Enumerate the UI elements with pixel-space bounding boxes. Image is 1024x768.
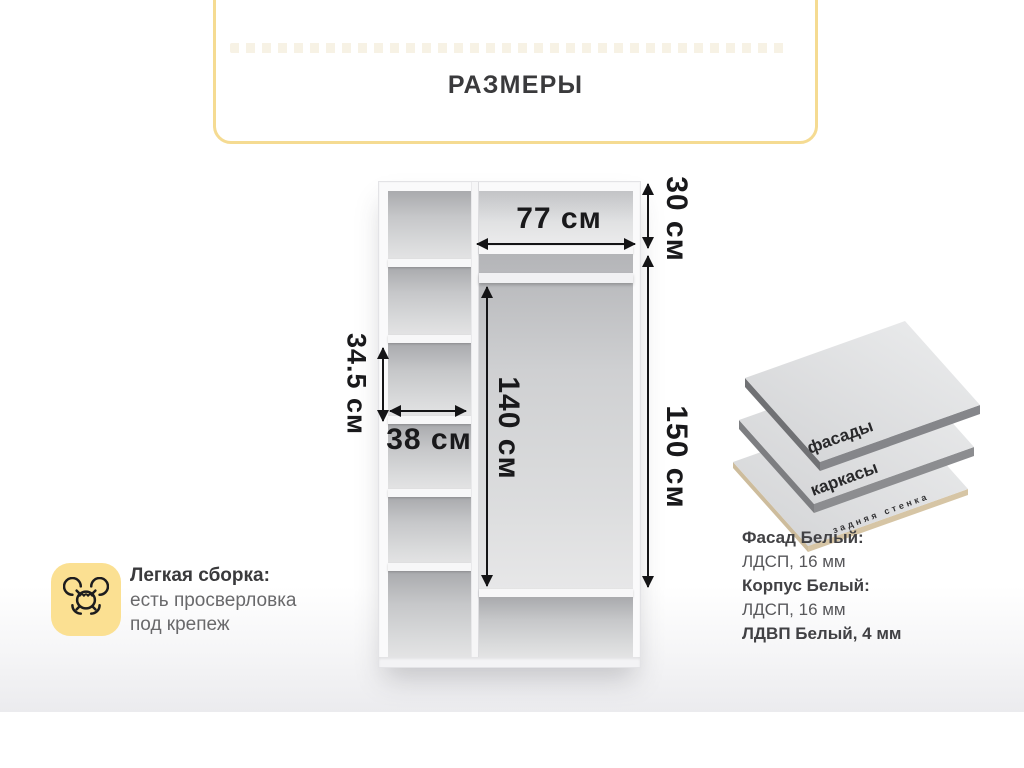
material-spec-value: ЛДСП, 16 мм [742, 552, 846, 572]
bottom-compartment [479, 597, 633, 657]
wrench-hand-icon [63, 577, 109, 623]
dimension-label-width-right: 77 см [516, 202, 602, 236]
dimension-label-height-right: 150 см [659, 405, 693, 508]
material-spec-value: ЛДСП, 16 мм [742, 600, 846, 620]
compartment [388, 497, 471, 563]
assembly-note-line1: есть просверловка [130, 590, 297, 612]
dimension-arrow-height-right [647, 256, 649, 587]
dimension-arrow-height-inner [486, 287, 488, 586]
dimension-label-height-top: 30 см [659, 176, 693, 262]
wardrobe-base [379, 657, 640, 667]
dimension-arrow-width-right [477, 243, 635, 245]
material-spec-label: ЛДВП Белый, 4 мм [742, 624, 901, 644]
dimension-label-width-left: 38 см [386, 423, 472, 457]
dimension-arrow-height-top [647, 184, 649, 248]
material-spec-label: Фасад Белый: [742, 528, 864, 548]
compartment [388, 191, 471, 259]
assembly-title: Легкая сборка: [130, 565, 270, 587]
compartment [388, 571, 471, 657]
shelf [388, 335, 471, 343]
shelf [479, 246, 633, 254]
compartment [388, 267, 471, 335]
dimension-label-height-inner: 140 см [491, 376, 525, 479]
infographic-page: РАЗМЕРЫ 77 см 30 см 150 см 140 см [0, 0, 1024, 768]
dimension-arrow-width-left [390, 410, 466, 412]
shelf [388, 489, 471, 497]
material-spec-label: Корпус Белый: [742, 576, 870, 596]
shelf [388, 259, 471, 267]
assembly-icon-badge [51, 563, 121, 636]
vertical-divider [471, 182, 479, 657]
title-banner: РАЗМЕРЫ [213, 0, 818, 144]
assembly-note-line2: под крепеж [130, 614, 230, 636]
banner-dashed-texture [230, 43, 790, 53]
shelf [388, 563, 471, 571]
hanging-rod [479, 273, 633, 283]
page-title: РАЗМЕРЫ [216, 71, 815, 100]
shelf [479, 589, 633, 597]
dimension-arrow-shelf-height [382, 348, 384, 421]
dimension-label-shelf-height: 34.5 см [341, 333, 372, 435]
